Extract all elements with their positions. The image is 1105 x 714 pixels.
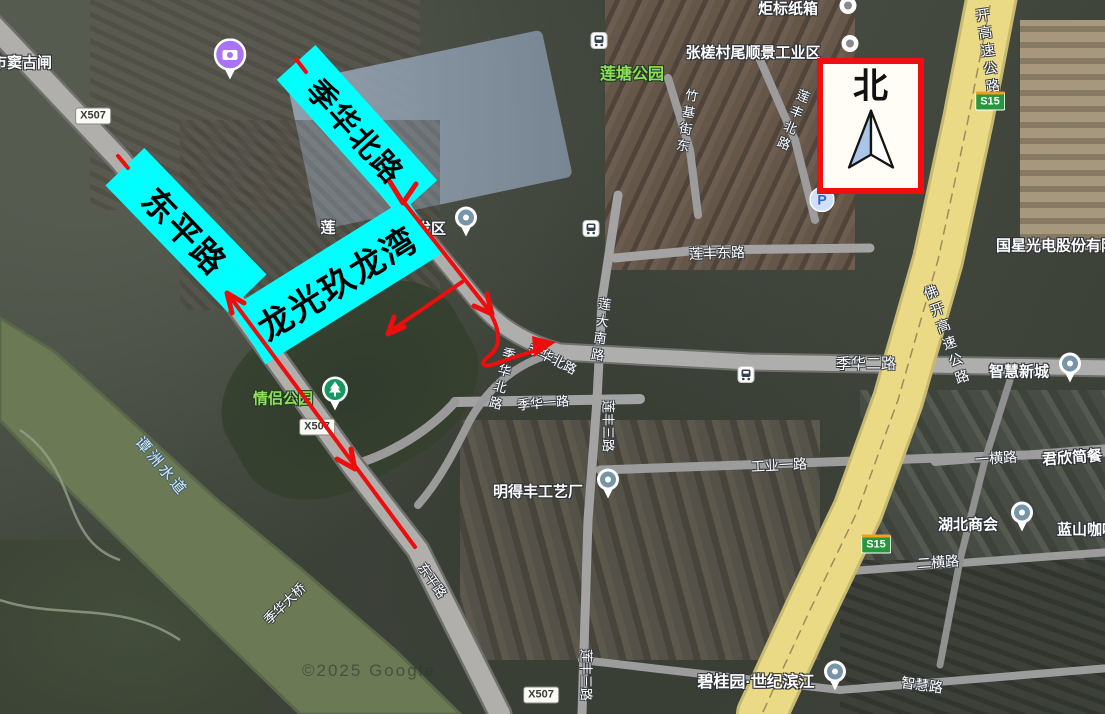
map-label-road: 莲丰东路	[689, 242, 746, 264]
map-label-place: 莲	[320, 217, 335, 238]
metro-poi-icon[interactable]	[583, 220, 600, 242]
metro-poi-icon[interactable]	[738, 366, 755, 388]
pin-poi-icon[interactable]	[1057, 352, 1083, 389]
map-label-road: 一横路	[974, 447, 1017, 470]
metro-poi-icon[interactable]	[591, 32, 608, 54]
dot-gray-poi-icon[interactable]	[841, 35, 859, 58]
pin-poi-icon[interactable]	[822, 660, 848, 697]
route-shield-x507: X507	[75, 108, 111, 125]
route-shield-s15: S15	[975, 92, 1005, 111]
pin-poi-icon[interactable]	[453, 206, 479, 243]
map-label-road: 二横路	[916, 551, 959, 574]
pin-poi-icon[interactable]	[1009, 501, 1035, 538]
map-label-road: 工业一路	[751, 454, 808, 477]
map-label-place: 张槎村尾顺景工业区	[685, 42, 820, 63]
google-watermark: ©2025 Google	[302, 661, 436, 681]
map-label-place: 湖北商会	[938, 514, 998, 535]
pin-poi-icon[interactable]	[595, 468, 621, 505]
route-shield-x507: X507	[523, 687, 559, 704]
north-compass-box: 北	[817, 58, 924, 194]
map-label-place: 炬标纸箱	[758, 0, 818, 19]
map-label-road: 莲丰三路	[578, 649, 597, 701]
map-label-place: 碧桂园·世纪滨江	[697, 668, 814, 692]
dot-gray-poi-icon[interactable]	[839, 0, 857, 20]
map-label-place: 国星光电股份有限	[996, 235, 1105, 256]
map-label-road: 季华二路	[836, 353, 896, 374]
map-label-place: 明得丰工艺厂	[493, 481, 583, 502]
route-shield-x507: X507	[299, 419, 335, 436]
map-label-park: 情侣公园	[253, 388, 313, 409]
map-label-place: 智慧新城	[989, 361, 1049, 382]
map-label-place: 蓝山咖啡	[1057, 519, 1105, 540]
map-label-place: 君欣简餐	[1041, 444, 1102, 469]
park-poi-icon[interactable]	[320, 376, 350, 417]
satellite-map[interactable]: 市窦古闸炬标纸箱张槎村尾顺景工业区莲塘公园竹基街东莲丰北路开高速公路国星光电股份…	[0, 0, 1105, 714]
camera-poi-icon[interactable]	[213, 39, 247, 86]
compass-arrow-icon	[842, 107, 900, 173]
north-label: 北	[853, 68, 888, 107]
map-label-place: 市窦古闸	[0, 52, 52, 73]
map-label-park: 莲塘公园	[600, 60, 664, 84]
map-label-road: 莲丰三路	[600, 400, 619, 452]
route-shield-s15: S15	[861, 535, 891, 554]
